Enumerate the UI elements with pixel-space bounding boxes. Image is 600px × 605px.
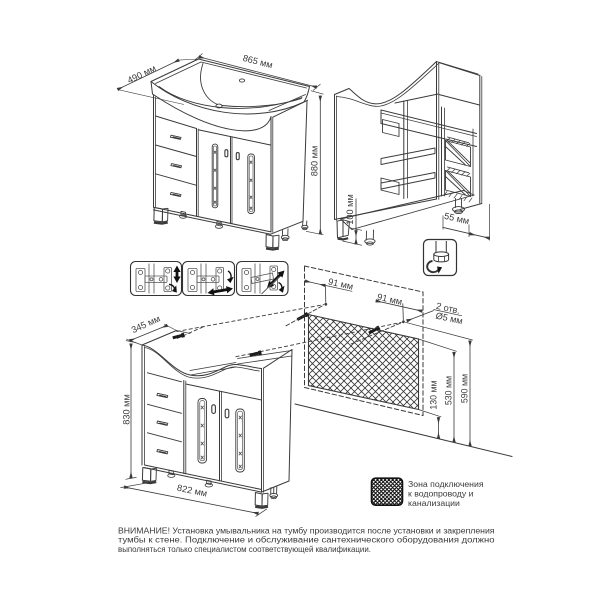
svg-text:830 мм: 830 мм <box>121 394 131 425</box>
svg-text:91 мм: 91 мм <box>327 276 354 291</box>
svg-text:822 мм: 822 мм <box>176 483 208 499</box>
svg-text:выполняться только специалисто: выполняться только специалистом соответс… <box>118 545 371 554</box>
svg-text:130 мм: 130 мм <box>429 380 439 409</box>
svg-text:530 мм: 530 мм <box>443 376 453 405</box>
svg-text:590 мм: 590 мм <box>460 374 470 403</box>
svg-text:91 мм: 91 мм <box>376 292 403 307</box>
svg-text:канализации: канализации <box>408 498 460 508</box>
svg-text:345 мм: 345 мм <box>130 313 162 335</box>
svg-text:865 мм: 865 мм <box>242 53 274 70</box>
svg-text:тумбы к стене. Подключение и о: тумбы к стене. Подключение и обслуживани… <box>118 536 495 545</box>
svg-text:ВНИМАНИЕ! Установка умывальник: ВНИМАНИЕ! Установка умывальника на тумбу… <box>118 527 495 536</box>
svg-text:55 мм: 55 мм <box>443 211 470 226</box>
svg-text:100 мм: 100 мм <box>345 194 355 225</box>
svg-text:к водопроводу и: к водопроводу и <box>408 489 474 499</box>
svg-text:Зона подключения: Зона подключения <box>408 479 484 489</box>
svg-text:880 мм: 880 мм <box>310 146 320 177</box>
svg-text:490 мм: 490 мм <box>126 63 158 85</box>
